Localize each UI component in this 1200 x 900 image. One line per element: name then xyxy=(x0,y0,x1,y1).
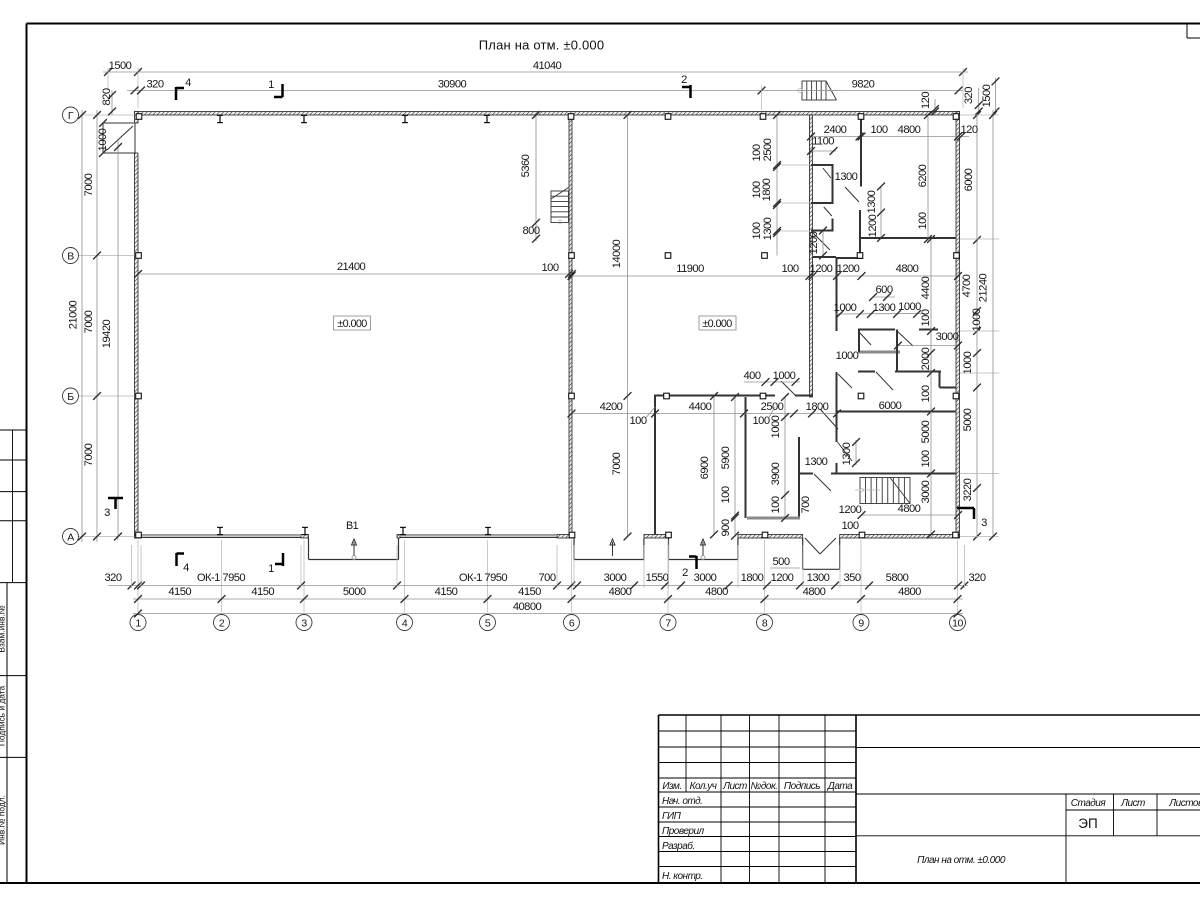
svg-text:ОК-1 7950: ОК-1 7950 xyxy=(197,572,246,584)
svg-text:ОК-1 7950: ОК-1 7950 xyxy=(459,572,508,584)
svg-text:4400: 4400 xyxy=(689,401,712,413)
svg-text:4150: 4150 xyxy=(251,586,274,598)
svg-text:1200: 1200 xyxy=(808,231,820,254)
svg-text:1000: 1000 xyxy=(962,351,974,374)
svg-text:4800: 4800 xyxy=(898,503,921,515)
svg-text:100: 100 xyxy=(629,415,646,427)
svg-text:В1: В1 xyxy=(346,520,359,532)
svg-text:4800: 4800 xyxy=(705,586,728,598)
svg-text:3220: 3220 xyxy=(962,478,974,501)
svg-text:±0.000: ±0.000 xyxy=(337,318,367,330)
svg-text:7000: 7000 xyxy=(83,443,95,466)
svg-text:Взам.инв.№: Взам.инв.№ xyxy=(0,605,7,652)
svg-text:5800: 5800 xyxy=(886,572,909,584)
svg-text:Листов: Листов xyxy=(1168,798,1200,809)
svg-text:5000: 5000 xyxy=(920,420,932,443)
svg-text:Инв.№ подл.: Инв.№ подл. xyxy=(0,795,7,845)
svg-text:21000: 21000 xyxy=(68,300,80,329)
svg-text:100: 100 xyxy=(541,262,558,274)
svg-text:2: 2 xyxy=(682,567,688,579)
svg-text:Г: Г xyxy=(68,110,74,122)
svg-text:1500: 1500 xyxy=(109,60,132,72)
svg-text:600: 600 xyxy=(875,284,892,296)
svg-text:1200: 1200 xyxy=(837,263,860,275)
svg-text:4: 4 xyxy=(183,562,189,574)
svg-text:2: 2 xyxy=(681,74,687,86)
svg-text:5360: 5360 xyxy=(520,154,532,177)
svg-text:6000: 6000 xyxy=(963,168,975,191)
svg-text:4: 4 xyxy=(185,77,191,89)
svg-text:Стадия: Стадия xyxy=(1071,798,1107,809)
svg-text:Изм.: Изм. xyxy=(662,781,681,792)
svg-text:350: 350 xyxy=(843,572,860,584)
svg-text:40800: 40800 xyxy=(513,601,542,613)
svg-text:6000: 6000 xyxy=(879,400,902,412)
svg-text:4800: 4800 xyxy=(609,586,632,598)
svg-text:14000: 14000 xyxy=(611,239,623,268)
svg-text:100: 100 xyxy=(751,144,763,161)
svg-text:4800: 4800 xyxy=(803,586,826,598)
svg-text:4800: 4800 xyxy=(898,124,921,136)
svg-text:1300: 1300 xyxy=(805,456,828,468)
svg-text:Разраб.: Разраб. xyxy=(662,840,695,852)
svg-text:Подпись: Подпись xyxy=(784,781,820,792)
svg-text:1000: 1000 xyxy=(836,350,859,362)
svg-text:Лист: Лист xyxy=(1120,798,1145,809)
svg-text:500: 500 xyxy=(772,556,789,568)
svg-text:100: 100 xyxy=(781,263,798,275)
svg-text:120: 120 xyxy=(920,92,932,109)
svg-text:9820: 9820 xyxy=(852,79,875,91)
svg-text:4800: 4800 xyxy=(896,263,919,275)
svg-text:Дата: Дата xyxy=(827,781,853,792)
svg-text:±0.000: ±0.000 xyxy=(702,318,732,330)
svg-text:ГИП: ГИП xyxy=(662,811,682,822)
svg-text:1300: 1300 xyxy=(866,190,878,213)
svg-text:Нач. отд.: Нач. отд. xyxy=(662,796,702,807)
svg-text:100: 100 xyxy=(917,212,929,229)
svg-text:100: 100 xyxy=(841,520,858,532)
svg-text:41040: 41040 xyxy=(533,60,562,72)
svg-text:1300: 1300 xyxy=(807,572,830,584)
svg-text:800: 800 xyxy=(522,225,539,237)
svg-text:320: 320 xyxy=(968,572,985,584)
svg-text:1300: 1300 xyxy=(762,217,774,240)
svg-text:3000: 3000 xyxy=(920,480,932,503)
svg-text:1000: 1000 xyxy=(770,415,782,438)
svg-text:1000: 1000 xyxy=(97,128,109,151)
svg-text:100: 100 xyxy=(920,385,932,402)
svg-text:4150: 4150 xyxy=(168,586,191,598)
svg-text:1000: 1000 xyxy=(773,370,796,382)
svg-text:План на отм. ±0.000: План на отм. ±0.000 xyxy=(917,855,1006,866)
svg-text:6200: 6200 xyxy=(917,164,929,187)
svg-text:100: 100 xyxy=(870,124,887,136)
svg-text:100: 100 xyxy=(752,415,769,427)
svg-text:3000: 3000 xyxy=(694,572,717,584)
svg-text:4200: 4200 xyxy=(600,401,623,413)
svg-text:Н. контр.: Н. контр. xyxy=(662,871,703,882)
svg-text:1550: 1550 xyxy=(646,572,669,584)
svg-text:Б: Б xyxy=(67,391,74,403)
svg-text:7000: 7000 xyxy=(611,452,623,475)
svg-text:1500: 1500 xyxy=(981,84,993,107)
svg-text:11900: 11900 xyxy=(676,263,704,275)
svg-text:1100: 1100 xyxy=(812,136,834,148)
svg-text:100: 100 xyxy=(920,450,932,467)
svg-text:5000: 5000 xyxy=(962,408,974,431)
svg-text:7000: 7000 xyxy=(83,310,95,333)
svg-text:700: 700 xyxy=(538,572,555,584)
svg-text:100: 100 xyxy=(920,309,932,326)
svg-text:19420: 19420 xyxy=(101,319,113,348)
svg-text:1200: 1200 xyxy=(810,263,833,275)
svg-text:4400: 4400 xyxy=(920,276,932,299)
svg-text:2: 2 xyxy=(219,618,225,630)
svg-text:4150: 4150 xyxy=(435,586,458,598)
svg-text:4: 4 xyxy=(402,618,408,630)
svg-text:320: 320 xyxy=(104,572,121,584)
svg-text:1200: 1200 xyxy=(771,572,794,584)
svg-text:1000: 1000 xyxy=(898,301,921,313)
svg-text:320: 320 xyxy=(146,79,163,91)
svg-text:ЭП: ЭП xyxy=(1078,816,1097,831)
svg-text:1300: 1300 xyxy=(841,442,853,465)
svg-text:5: 5 xyxy=(485,618,491,630)
svg-text:7000: 7000 xyxy=(83,173,95,196)
svg-text:2400: 2400 xyxy=(824,124,847,136)
svg-text:1: 1 xyxy=(268,563,274,575)
svg-text:21240: 21240 xyxy=(978,273,990,302)
svg-text:Подпись и дата: Подпись и дата xyxy=(0,686,7,747)
svg-text:120: 120 xyxy=(960,124,977,136)
svg-text:30900: 30900 xyxy=(438,79,467,91)
svg-text:8: 8 xyxy=(762,618,768,630)
svg-text:3: 3 xyxy=(301,618,307,630)
svg-text:План на отм. ±0.000: План на отм. ±0.000 xyxy=(479,38,605,53)
svg-text:100: 100 xyxy=(720,486,732,503)
svg-text:1: 1 xyxy=(135,618,141,630)
svg-text:400: 400 xyxy=(743,370,760,382)
svg-text:№док.: №док. xyxy=(751,781,778,792)
svg-text:1: 1 xyxy=(268,79,274,91)
svg-text:2500: 2500 xyxy=(762,138,774,161)
svg-text:5900: 5900 xyxy=(720,446,732,469)
svg-text:1800: 1800 xyxy=(741,572,764,584)
svg-text:820: 820 xyxy=(101,88,113,105)
svg-text:1200: 1200 xyxy=(867,214,879,237)
svg-text:В: В xyxy=(67,251,74,263)
svg-text:100: 100 xyxy=(751,181,763,198)
svg-text:3000: 3000 xyxy=(936,331,959,343)
svg-text:1800: 1800 xyxy=(806,401,829,413)
svg-text:9: 9 xyxy=(858,618,864,630)
svg-text:320: 320 xyxy=(963,87,975,104)
svg-text:3: 3 xyxy=(981,517,987,529)
svg-text:4150: 4150 xyxy=(518,586,541,598)
svg-text:6: 6 xyxy=(569,618,575,630)
svg-text:1300: 1300 xyxy=(873,302,896,314)
svg-text:Лист: Лист xyxy=(722,781,747,792)
svg-text:Проверил: Проверил xyxy=(662,826,705,837)
svg-text:1000: 1000 xyxy=(834,302,857,314)
svg-text:100: 100 xyxy=(770,496,782,513)
svg-text:21400: 21400 xyxy=(337,261,366,273)
svg-text:3900: 3900 xyxy=(770,462,782,485)
svg-text:900: 900 xyxy=(720,519,732,536)
svg-text:1000: 1000 xyxy=(971,308,983,331)
svg-text:3000: 3000 xyxy=(604,572,627,584)
svg-text:4800: 4800 xyxy=(898,586,921,598)
svg-text:10: 10 xyxy=(952,618,963,630)
svg-text:3: 3 xyxy=(104,507,110,519)
svg-text:5000: 5000 xyxy=(343,586,366,598)
svg-text:1200: 1200 xyxy=(839,504,862,516)
svg-text:100: 100 xyxy=(751,222,763,239)
svg-text:700: 700 xyxy=(800,496,812,513)
svg-text:7: 7 xyxy=(665,618,671,630)
svg-text:1300: 1300 xyxy=(835,171,858,183)
svg-text:Кол.уч: Кол.уч xyxy=(690,781,717,792)
svg-text:А: А xyxy=(67,532,74,544)
svg-text:6900: 6900 xyxy=(699,456,711,479)
svg-text:4700: 4700 xyxy=(961,274,973,297)
svg-text:2000: 2000 xyxy=(920,347,932,370)
